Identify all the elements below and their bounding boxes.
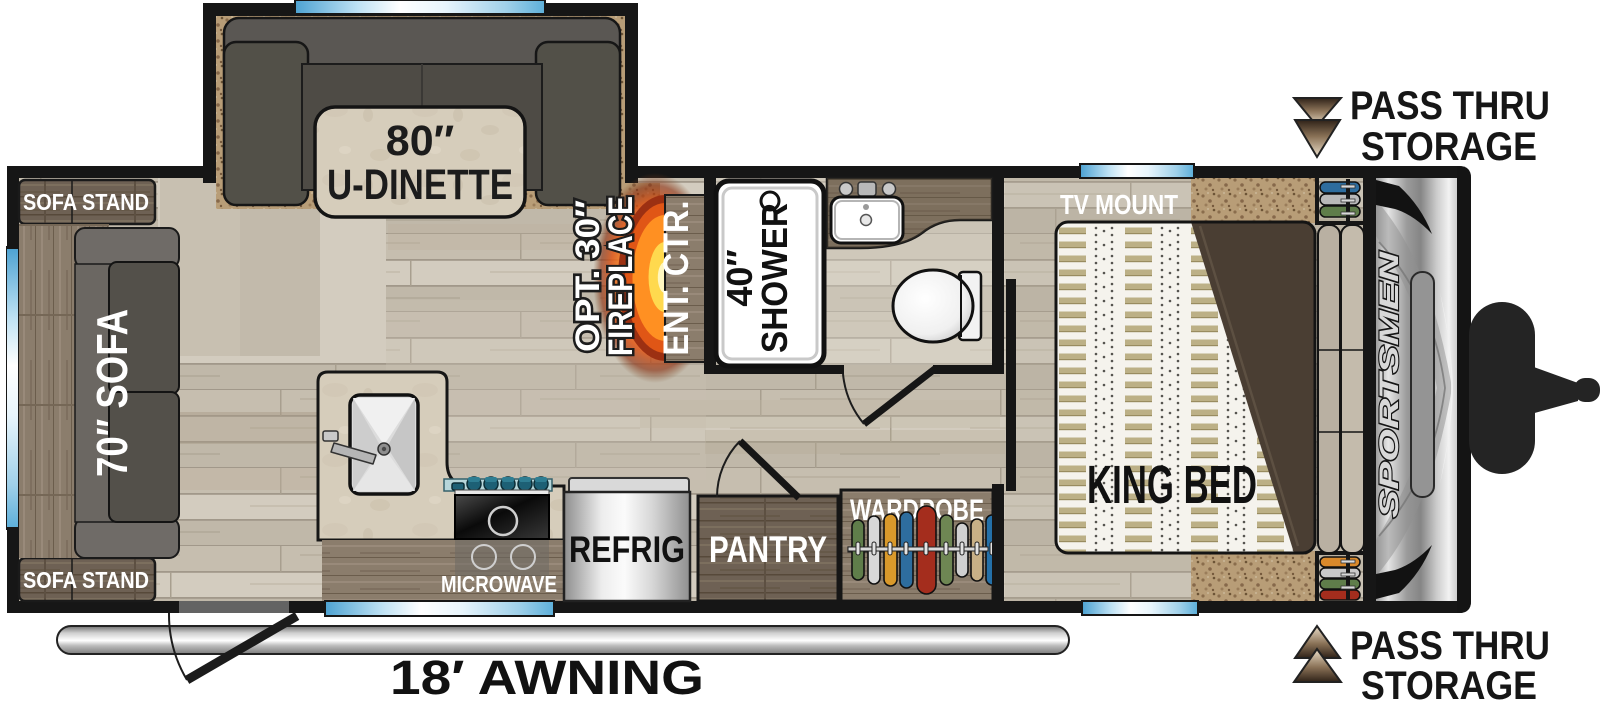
svg-text:80″: 80″ — [386, 117, 454, 165]
svg-text:ENT. CTR.: ENT. CTR. — [657, 201, 696, 356]
svg-text:REFRIG: REFRIG — [569, 529, 685, 570]
svg-text:STORAGE: STORAGE — [1361, 664, 1537, 702]
svg-text:PASS THRU: PASS THRU — [1350, 84, 1550, 128]
svg-text:SOFA STAND: SOFA STAND — [23, 567, 149, 593]
svg-text:70″ SOFA: 70″ SOFA — [88, 309, 137, 477]
svg-text:18′ AWNING: 18′ AWNING — [390, 652, 704, 702]
svg-text:SHOWER: SHOWER — [754, 203, 795, 353]
svg-text:TV MOUNT: TV MOUNT — [1060, 189, 1178, 220]
svg-text:KING BED: KING BED — [1087, 455, 1257, 515]
svg-text:PANTRY: PANTRY — [709, 529, 827, 570]
svg-text:SPORTSMEN: SPORTSMEN — [1374, 251, 1404, 518]
svg-text:FIREPLACE: FIREPLACE — [602, 196, 640, 356]
svg-text:PASS THRU: PASS THRU — [1350, 624, 1550, 668]
svg-text:STORAGE: STORAGE — [1361, 125, 1537, 169]
svg-text:U-DINETTE: U-DINETTE — [327, 161, 513, 209]
svg-text:MICROWAVE: MICROWAVE — [441, 571, 557, 597]
svg-text:SOFA STAND: SOFA STAND — [23, 189, 149, 215]
